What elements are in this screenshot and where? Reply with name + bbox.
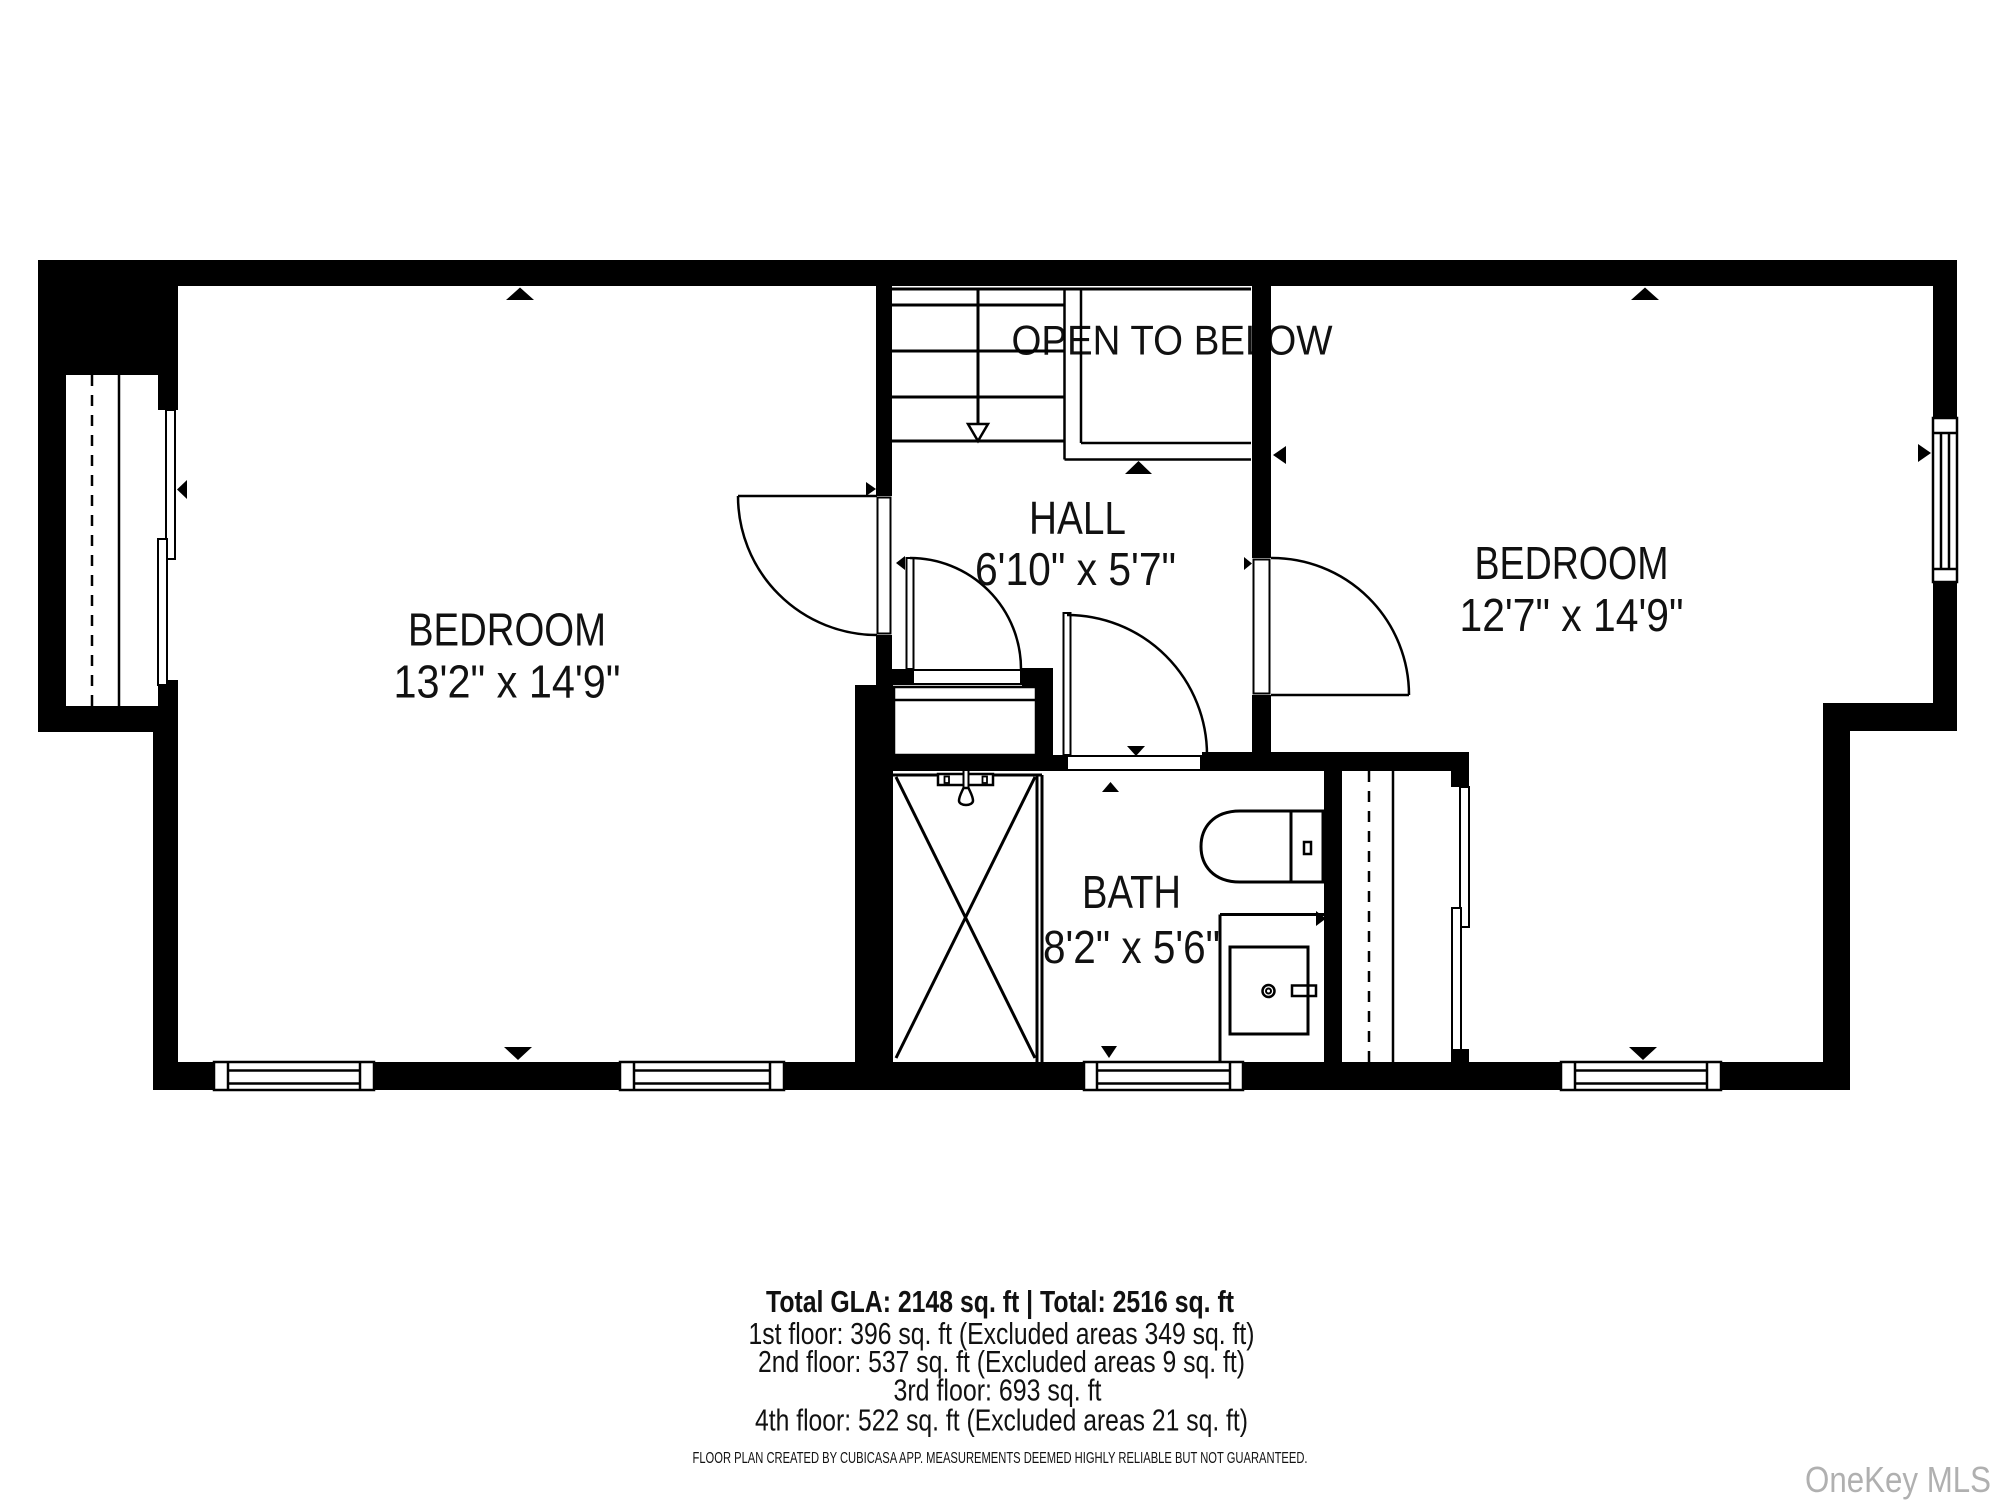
svg-text:HALL: HALL	[1029, 492, 1126, 544]
svg-text:BEDROOM: BEDROOM	[408, 604, 606, 656]
svg-text:BEDROOM: BEDROOM	[1475, 537, 1669, 589]
svg-text:OPEN TO BELOW: OPEN TO BELOW	[1012, 317, 1333, 364]
svg-text:BATH: BATH	[1082, 866, 1181, 918]
svg-text:Total GLA: 2148 sq. ft | Total: Total GLA: 2148 sq. ft | Total: 2516 sq.…	[766, 1284, 1234, 1319]
svg-text:13'2" x 14'9": 13'2" x 14'9"	[394, 656, 621, 708]
svg-text:OneKey MLS: OneKey MLS	[1805, 1459, 1991, 1500]
svg-text:FLOOR PLAN CREATED BY CUBICASA: FLOOR PLAN CREATED BY CUBICASA APP. MEAS…	[693, 1450, 1308, 1467]
svg-text:8'2" x 5'6": 8'2" x 5'6"	[1043, 921, 1220, 973]
svg-text:6'10" x 5'7": 6'10" x 5'7"	[975, 543, 1176, 595]
svg-text:12'7" x 14'9": 12'7" x 14'9"	[1460, 589, 1684, 641]
svg-text:4th floor: 522 sq. ft (Exclude: 4th floor: 522 sq. ft (Excluded areas 21…	[755, 1403, 1248, 1438]
